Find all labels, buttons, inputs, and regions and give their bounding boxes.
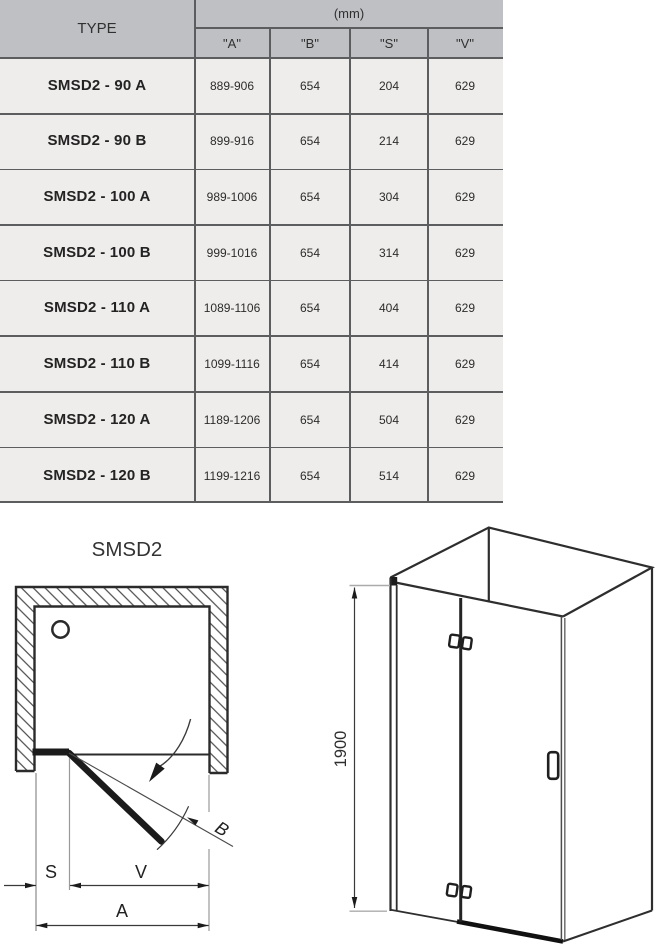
svg-text:S: S xyxy=(45,862,57,882)
svg-text:SMSD2: SMSD2 xyxy=(92,538,163,561)
svg-text:A: A xyxy=(116,901,128,921)
svg-text:1900: 1900 xyxy=(332,731,350,768)
svg-text:V: V xyxy=(135,862,147,882)
svg-text:B: B xyxy=(212,817,233,840)
